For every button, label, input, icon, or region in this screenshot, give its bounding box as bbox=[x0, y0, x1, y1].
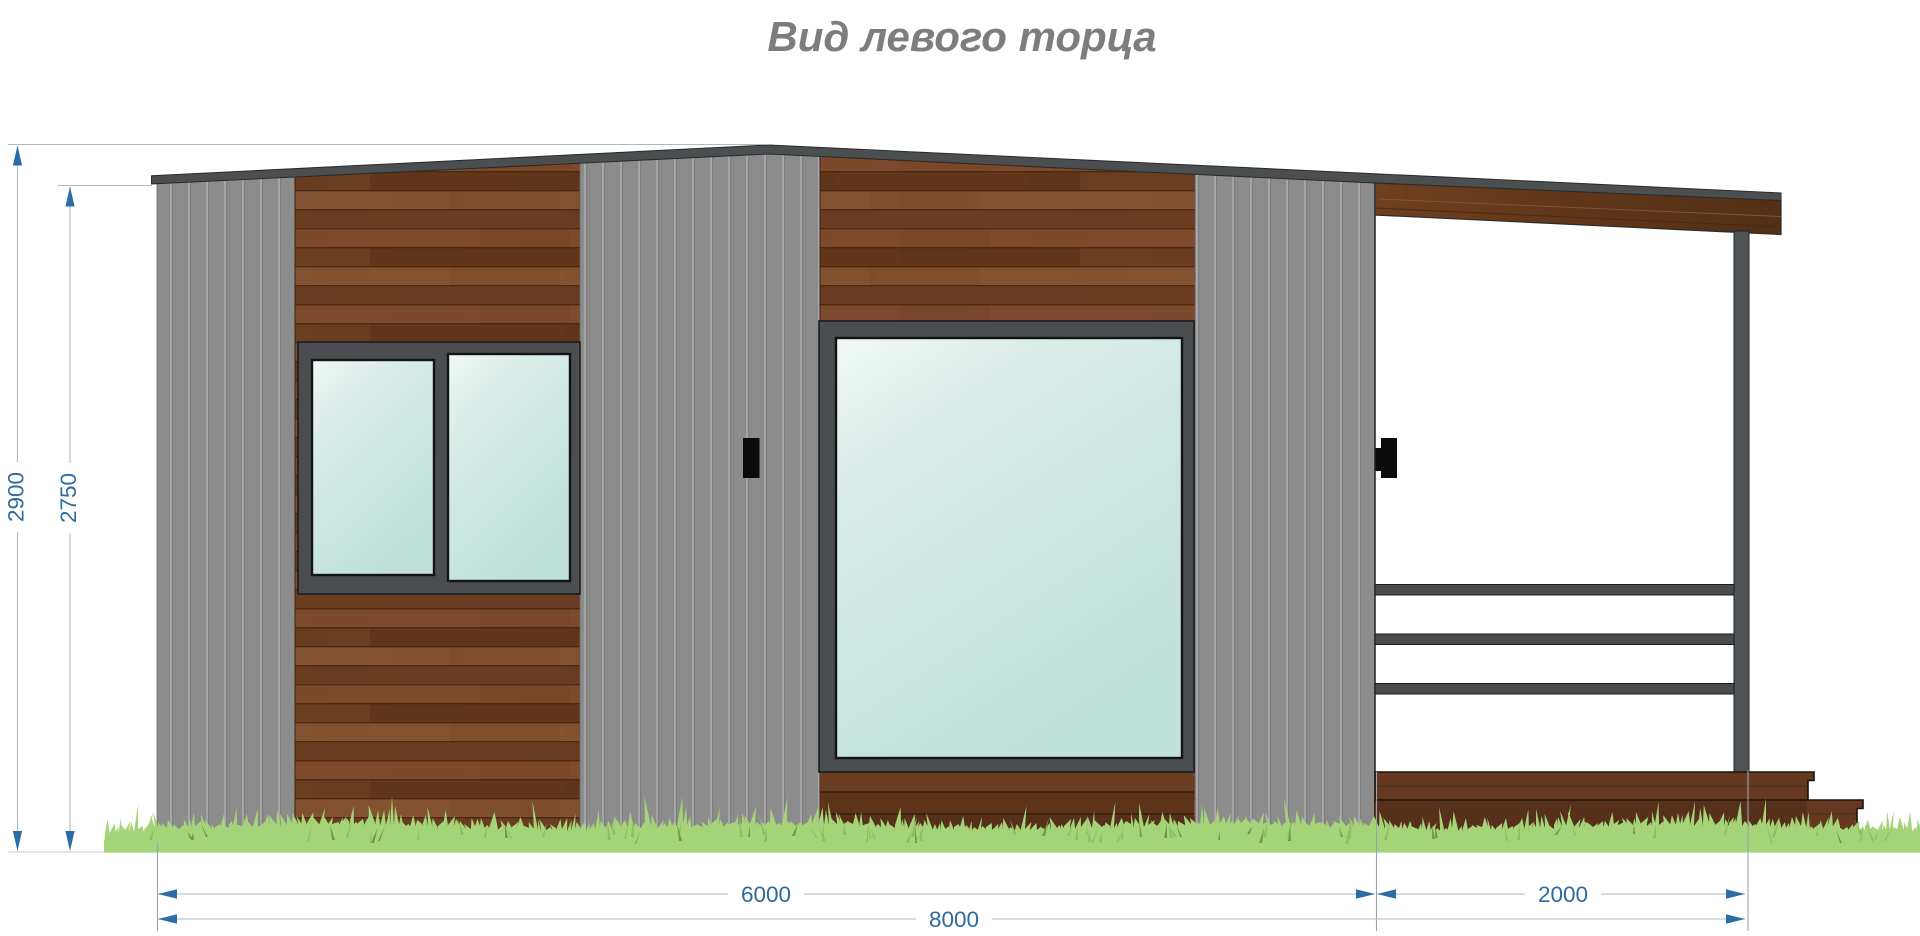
svg-text:2900: 2900 bbox=[3, 472, 28, 522]
svg-text:6000: 6000 bbox=[741, 882, 791, 907]
svg-text:2000: 2000 bbox=[1538, 882, 1588, 907]
svg-text:Вид левого торца: Вид левого торца bbox=[767, 13, 1156, 60]
svg-text:2750: 2750 bbox=[56, 473, 81, 523]
svg-text:8000: 8000 bbox=[929, 907, 979, 932]
